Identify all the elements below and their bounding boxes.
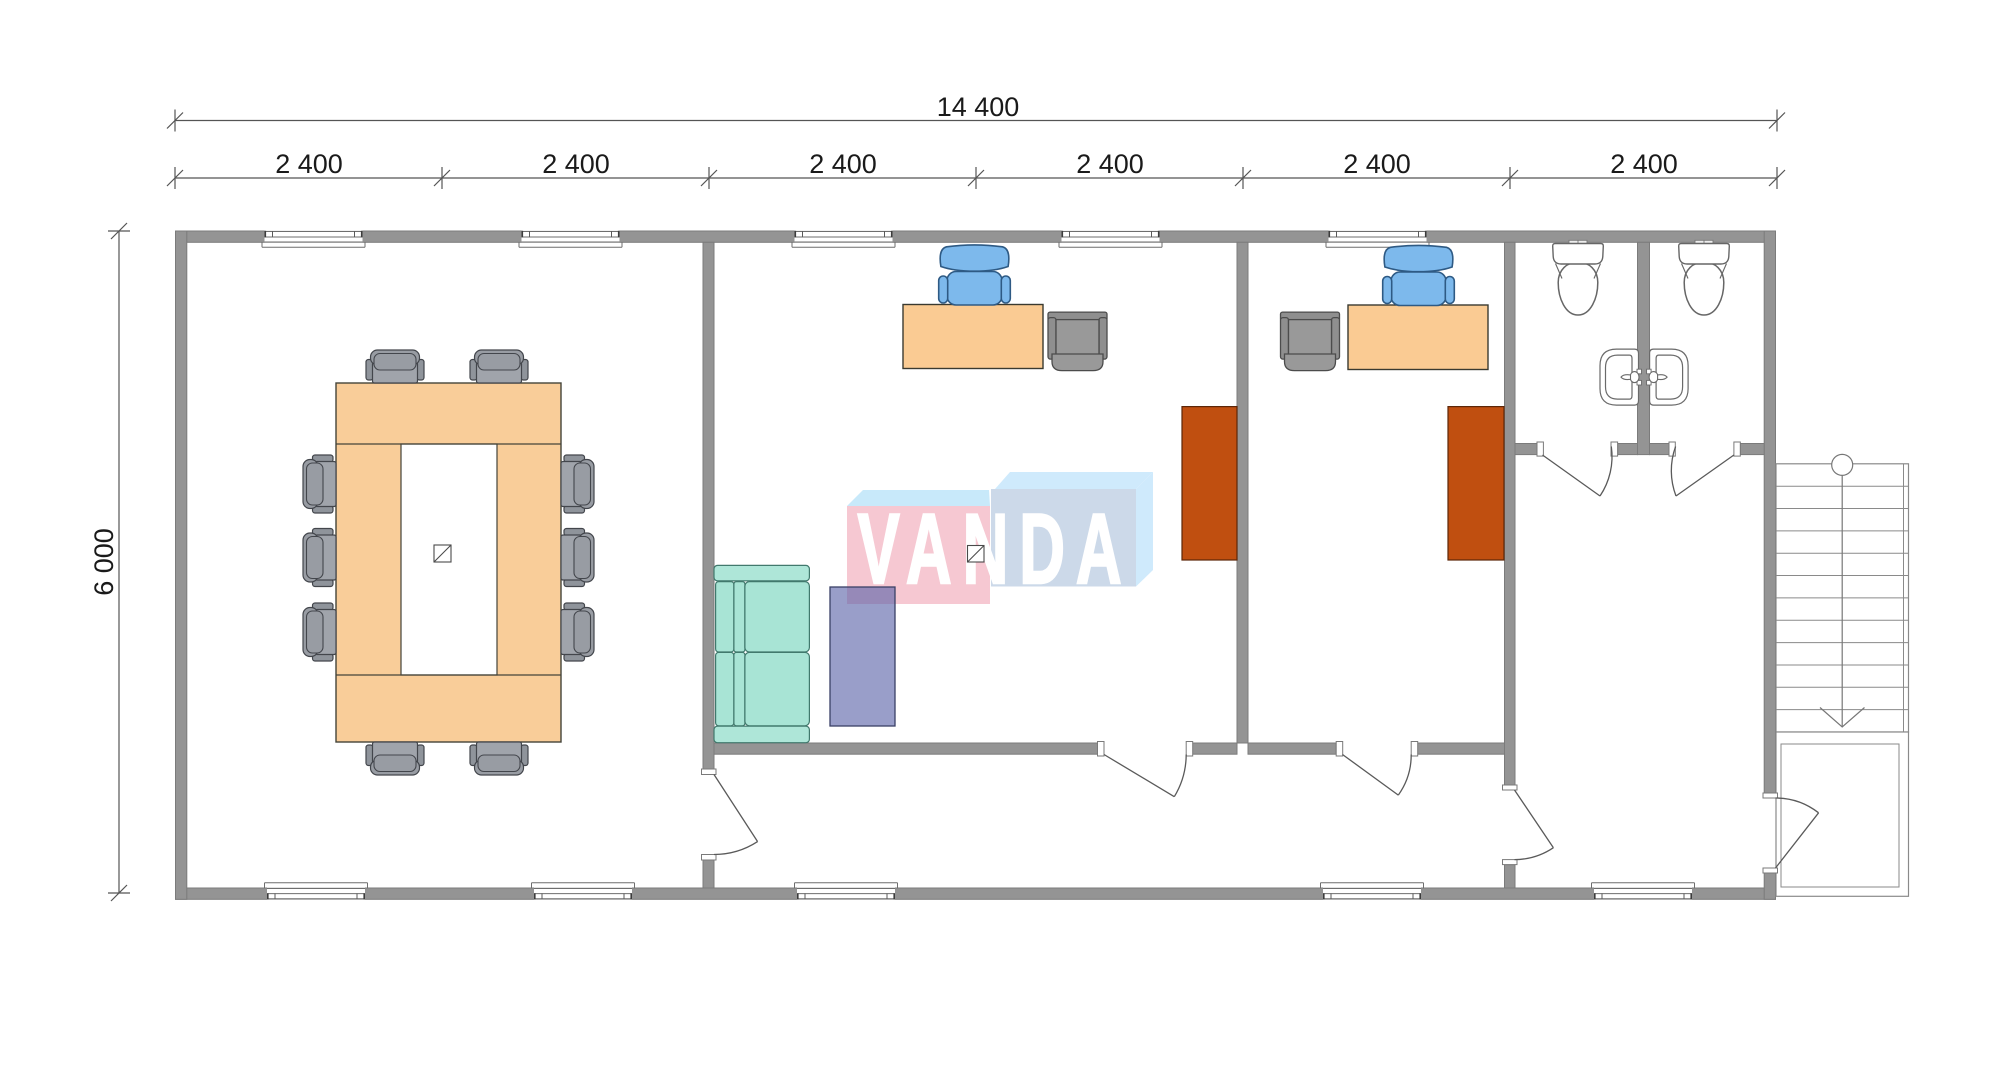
- svg-text:2 400: 2 400: [1610, 149, 1678, 179]
- svg-text:2 400: 2 400: [275, 149, 343, 179]
- svg-text:2 400: 2 400: [809, 149, 877, 179]
- svg-text:6 000: 6 000: [89, 528, 119, 596]
- svg-text:2 400: 2 400: [1343, 149, 1411, 179]
- svg-text:14 400: 14 400: [937, 92, 1020, 122]
- svg-text:2 400: 2 400: [1076, 149, 1144, 179]
- svg-text:2 400: 2 400: [542, 149, 610, 179]
- svg-text:VANDA: VANDA: [858, 494, 1133, 605]
